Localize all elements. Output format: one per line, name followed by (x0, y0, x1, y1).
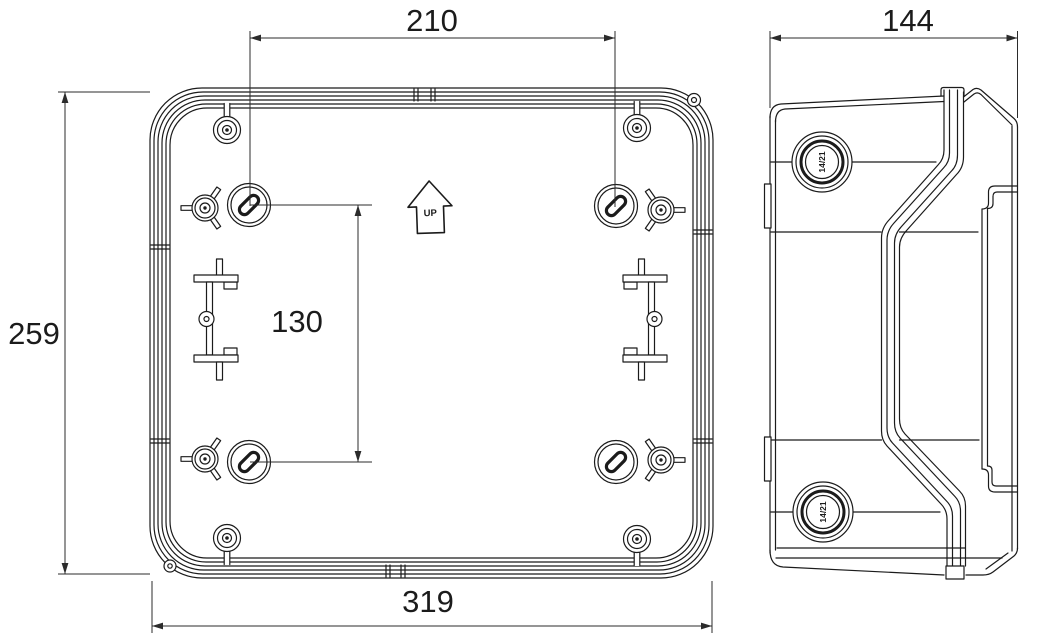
hinge-ear-top-right (688, 94, 701, 107)
border-tick-marks (151, 89, 712, 577)
dim-width: 319 (152, 581, 712, 633)
dim-hole-spacing-v: 130 (250, 205, 372, 462)
mounting-hole-bottom-right (595, 441, 638, 484)
wall-clip-right (623, 259, 667, 380)
hinge-wheel-bottom-right (645, 439, 685, 481)
hinge-wheel-top-left (181, 187, 221, 229)
front-outline (150, 88, 713, 578)
dim-130-label: 130 (271, 304, 323, 339)
dim-319-label: 319 (402, 584, 454, 619)
hinge-wheel-bottom-left (181, 438, 221, 480)
up-arrow-icon: UP (407, 180, 453, 234)
side-screw-channel (882, 90, 966, 579)
dim-144-label: 144 (882, 3, 934, 38)
dim-height: 259 (8, 92, 150, 574)
dimensions: 210 144 259 130 319 (8, 3, 1017, 633)
knockout-bottom: 14/21 (793, 482, 853, 542)
side-view: 14/21 14/21 (765, 88, 1018, 580)
hinge-ear-bottom-left (164, 560, 176, 572)
mounting-hole-top-right (595, 185, 638, 228)
corner-screw-bottom-right (624, 526, 651, 567)
wall-clip-left (194, 259, 238, 380)
knockout-top-label: 14/21 (817, 151, 827, 173)
side-lid-outline (964, 88, 1018, 551)
dim-259-label: 259 (8, 316, 60, 351)
knockout-top: 14/21 (792, 132, 852, 192)
dim-depth: 144 (770, 3, 1018, 118)
up-arrow-label: UP (423, 208, 437, 219)
corner-screw-top-right (624, 101, 651, 142)
dim-hole-spacing-h: 210 (250, 3, 615, 207)
technical-drawing-canvas: UP (0, 0, 1060, 644)
side-section-lines (771, 162, 979, 512)
front-view: UP (150, 88, 713, 578)
knockout-bottom-label: 14/21 (818, 501, 828, 523)
enclosure-drawing: UP (0, 0, 1060, 644)
dim-210-label: 210 (406, 3, 458, 38)
hinge-wheel-top-right (645, 189, 685, 231)
corner-screw-bottom-left (214, 525, 241, 566)
corner-screw-top-left (214, 103, 241, 144)
